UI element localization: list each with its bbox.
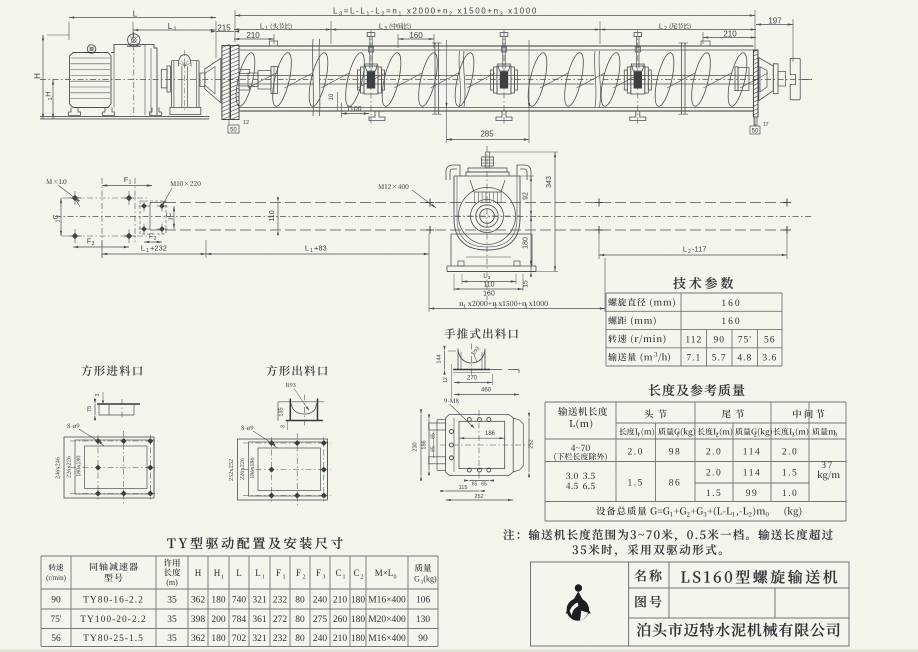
svg-text:75': 75' [50,615,62,625]
svg-text:92: 92 [523,192,530,200]
svg-text:+83: +83 [314,244,327,253]
svg-text:106: 106 [416,596,431,606]
svg-text:362: 362 [191,634,206,644]
svg-text:740: 740 [232,596,247,606]
svg-text:H: H [195,568,202,578]
svg-text:1: 1 [129,180,132,186]
svg-text:110: 110 [269,210,276,221]
svg-text:TY80-16-2.2: TY80-16-2.2 [83,596,144,606]
svg-text:L: L [305,244,309,253]
svg-text:G: G [414,575,420,584]
svg-text:1: 1 [283,575,286,581]
svg-text:240: 240 [313,596,328,606]
svg-text:56: 56 [51,634,61,644]
svg-text:+232: +232 [150,244,167,253]
svg-text:1: 1 [265,26,268,32]
svg-text:210: 210 [333,634,348,644]
svg-text:361: 361 [252,615,267,625]
svg-text:114: 114 [743,469,761,479]
svg-text:1: 1 [173,27,176,33]
svg-text:275: 275 [313,615,328,625]
svg-text:230: 230 [413,442,419,451]
svg-text:784: 784 [232,615,247,625]
svg-text:2: 2 [361,575,364,581]
svg-text:115: 115 [459,485,468,491]
svg-text:F: F [87,239,91,246]
svg-text:F: F [124,177,128,184]
svg-text:186: 186 [485,431,496,437]
svg-text:3: 3 [384,26,387,32]
svg-text:TY100-20-2.2: TY100-20-2.2 [80,615,147,625]
svg-text:343: 343 [546,176,553,188]
svg-text:362: 362 [191,596,206,606]
svg-text:C: C [53,214,60,219]
svg-text:2: 2 [688,249,691,255]
svg-text:L: L [141,244,145,253]
svg-text:L: L [255,568,261,578]
svg-text:C: C [353,568,359,578]
svg-text:215: 215 [217,23,231,32]
svg-text:65: 65 [431,446,437,452]
svg-text:110: 110 [483,282,494,289]
svg-text:H: H [33,73,42,79]
svg-text:1: 1 [310,248,313,254]
svg-text:90: 90 [713,335,725,345]
svg-text:80: 80 [295,596,305,606]
svg-text:144: 144 [437,354,443,363]
svg-text:90: 90 [51,596,61,606]
svg-text:2.0: 2.0 [706,448,722,458]
svg-text:(m): (m) [166,578,178,587]
svg-text:65: 65 [431,433,437,439]
svg-text:180: 180 [351,615,366,625]
svg-text:37: 37 [821,461,834,471]
svg-text:2.0: 2.0 [628,448,644,458]
svg-text:3: 3 [169,217,175,220]
svg-text:-117: -117 [692,245,706,254]
svg-text:L: L [379,21,383,30]
svg-text:702: 702 [232,634,247,644]
svg-text:232: 232 [273,634,288,644]
svg-text:160: 160 [721,317,741,327]
svg-text:12: 12 [243,120,249,126]
svg-text:5.7: 5.7 [712,354,727,364]
svg-text:M16×400: M16×400 [368,634,406,644]
svg-text:285: 285 [480,130,494,139]
svg-text:75: 75 [87,406,93,412]
svg-text:17: 17 [763,122,769,128]
svg-text:3: 3 [281,425,287,428]
svg-text:L: L [483,273,487,280]
svg-text:56: 56 [764,335,776,345]
svg-text:90: 90 [418,634,428,644]
svg-text:232: 232 [273,596,288,606]
svg-text:98: 98 [669,448,682,458]
svg-text:3: 3 [92,241,95,247]
svg-text:H: H [44,91,53,96]
svg-text:135: 135 [279,407,285,416]
svg-text:1: 1 [48,97,54,100]
svg-text:L: L [683,245,687,254]
svg-text:TY80-25-1.5: TY80-25-1.5 [83,634,144,644]
svg-text:80: 80 [295,634,305,644]
svg-text:252: 252 [529,439,535,448]
svg-text:398: 398 [191,615,206,625]
svg-text:35: 35 [167,596,177,606]
svg-text:C: C [166,212,173,217]
svg-text:210: 210 [246,31,260,40]
svg-text:321: 321 [252,596,267,606]
svg-text:180: 180 [523,237,530,249]
svg-text:75': 75' [738,335,752,345]
svg-text:(r/min): (r/min) [46,574,66,582]
svg-text:1.0: 1.0 [782,489,798,499]
svg-text:65: 65 [481,482,487,488]
svg-text:50: 50 [752,129,759,135]
svg-text:1.5: 1.5 [782,469,798,479]
svg-text:99: 99 [746,489,759,499]
svg-text:35: 35 [167,634,177,644]
svg-text:L: L [260,21,264,30]
svg-text:272: 272 [273,615,288,625]
svg-text:2.0: 2.0 [782,448,798,458]
svg-text:1.5: 1.5 [628,479,644,489]
svg-text:3.6: 3.6 [762,354,777,364]
svg-text:1: 1 [262,575,265,581]
svg-text:4.8: 4.8 [737,354,752,364]
svg-text:114: 114 [743,448,761,458]
svg-text:3: 3 [323,575,326,581]
svg-text:H: H [214,568,221,578]
svg-text:L: L [659,21,663,30]
svg-text:M×L: M×L [375,568,394,578]
svg-text:L: L [236,568,242,578]
svg-text:F: F [316,568,321,578]
svg-text:86: 86 [669,479,682,489]
svg-text:270: 270 [467,376,478,382]
svg-text:15: 15 [523,280,530,288]
svg-text:1100: 1100 [346,106,361,113]
svg-text:50: 50 [230,128,237,134]
svg-text:130: 130 [416,615,431,625]
svg-text:12: 12 [443,377,449,383]
svg-text:F: F [276,568,281,578]
svg-text:186: 186 [422,440,428,449]
svg-text:160: 160 [483,291,495,298]
svg-text:1: 1 [56,219,62,222]
svg-text:260: 260 [333,615,348,625]
svg-text:180: 180 [211,634,226,644]
svg-text:80: 80 [295,615,305,625]
svg-text:112: 112 [685,335,702,345]
svg-text:10: 10 [329,93,335,100]
svg-text:(kg): (kg) [423,575,437,584]
svg-text:3: 3 [95,393,101,396]
svg-text:252: 252 [474,494,483,500]
svg-text:460: 460 [481,388,492,394]
svg-text:180: 180 [351,596,366,606]
svg-text:1: 1 [221,575,224,581]
svg-text:65: 65 [472,482,478,488]
svg-text:2: 2 [303,575,306,581]
svg-text:240: 240 [313,634,328,644]
svg-text:C: C [335,568,341,578]
svg-text:1: 1 [146,248,149,254]
svg-text:M16×400: M16×400 [368,596,406,606]
svg-text:L: L [168,22,173,31]
svg-text:7.1: 7.1 [686,354,701,364]
svg-text:160: 160 [409,31,423,40]
svg-text:2.0: 2.0 [706,469,722,479]
svg-text:210: 210 [333,596,348,606]
svg-text:35: 35 [167,615,177,625]
svg-text:1: 1 [343,575,346,581]
svg-text:2: 2 [664,26,667,32]
svg-text:M20×400: M20×400 [368,615,406,625]
svg-text:L: L [133,9,138,18]
svg-text:0: 0 [394,575,397,581]
svg-text:210: 210 [723,29,737,38]
svg-text:321: 321 [252,634,267,644]
svg-text:180: 180 [351,634,366,644]
svg-text:197: 197 [768,16,782,25]
svg-text:2: 2 [154,236,157,242]
svg-text:160: 160 [721,299,741,309]
svg-text:180: 180 [211,596,226,606]
svg-text:F: F [296,568,301,578]
svg-text:F: F [149,234,153,241]
svg-text:200: 200 [211,615,226,625]
svg-text:1.5: 1.5 [706,489,722,499]
